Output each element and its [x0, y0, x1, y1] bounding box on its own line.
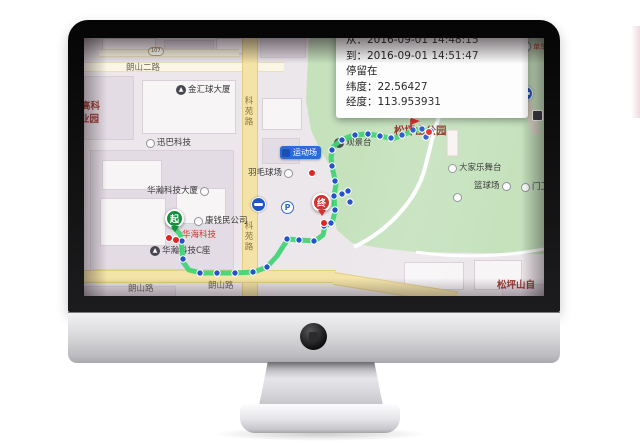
popup-from-line: 从：2016-09-01 14:48:15	[346, 38, 518, 49]
stay-points	[166, 129, 433, 244]
scene: 朗山二路 科苑路 科苑路 朗山路 朗山路 107 ▲ 金汇球大厦 高科 业园 迅…	[0, 0, 640, 444]
popup-lng-line: 经度：113.953931	[346, 95, 518, 111]
stay-info-popup: 从：2016-09-01 14:48:15 到：2016-09-01 14:51…	[336, 38, 528, 118]
end-marker[interactable]: 终	[312, 193, 331, 212]
start-marker[interactable]: 起	[165, 209, 184, 228]
route-polyline	[174, 130, 432, 273]
monitor-stand-neck	[259, 362, 383, 406]
brand-logo-icon	[300, 323, 327, 350]
popup-lat-line: 纬度：22.56427	[346, 80, 518, 96]
map-screen[interactable]: 朗山二路 科苑路 科苑路 朗山路 朗山路 107 ▲ 金汇球大厦 高科 业园 迅…	[84, 38, 544, 296]
monitor-chin	[68, 312, 560, 363]
photo-edge-artifact	[631, 26, 640, 118]
start-marker-label: 起	[170, 212, 179, 225]
monitor-bezel: 朗山二路 科苑路 科苑路 朗山路 朗山路 107 ▲ 金汇球大厦 高科 业园 迅…	[68, 20, 560, 312]
end-marker-label: 终	[317, 196, 326, 209]
popup-stay-line: 停留在	[346, 64, 518, 80]
monitor-stand-base	[240, 404, 400, 433]
popup-to-line: 到：2016-09-01 14:51:47	[346, 49, 518, 65]
route-waypoints	[179, 126, 434, 276]
webcam-icon	[309, 332, 318, 341]
